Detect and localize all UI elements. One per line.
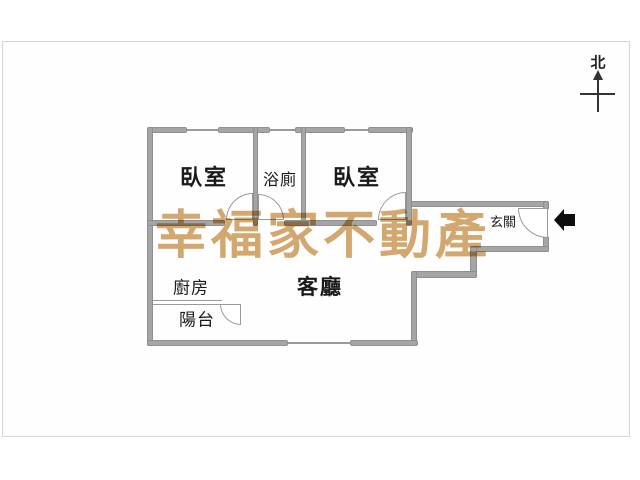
- window-bottom: [288, 342, 350, 344]
- floor-plan-canvas: 臥室 浴廁 臥室 玄關 廚房 客廳 陽台 北 幸福家不動產: [0, 0, 640, 480]
- room-label-kitchen: 廚房: [173, 274, 209, 299]
- north-arrow-line: [597, 78, 599, 112]
- wall-left-exterior: [147, 127, 153, 346]
- window-top-3: [345, 129, 368, 131]
- room-label-balcony: 陽台: [179, 306, 215, 331]
- entry-arrow-icon: [554, 209, 564, 231]
- wall-balcony-partition: [153, 300, 222, 305]
- room-label-bedroom-left: 臥室: [180, 160, 228, 192]
- wall-bottom-segment-2: [350, 340, 418, 346]
- north-crossbar: [580, 93, 615, 95]
- room-label-bedroom-right: 臥室: [333, 160, 381, 192]
- window-top-1: [187, 129, 218, 131]
- window-top-2: [270, 129, 295, 131]
- room-label-entry: 玄關: [490, 212, 516, 231]
- wall-top-segment-1: [147, 127, 187, 133]
- room-label-living: 客廳: [297, 271, 343, 301]
- wall-bottom-segment-1: [147, 340, 288, 346]
- wall-right-lower: [411, 271, 417, 346]
- wall-top-segment-2: [218, 127, 270, 133]
- wall-notch-horizontal: [411, 271, 477, 278]
- room-label-bathroom: 浴廁: [263, 166, 297, 190]
- watermark: 幸福家不動產: [155, 210, 491, 262]
- entry-arrow-shaft: [564, 214, 575, 226]
